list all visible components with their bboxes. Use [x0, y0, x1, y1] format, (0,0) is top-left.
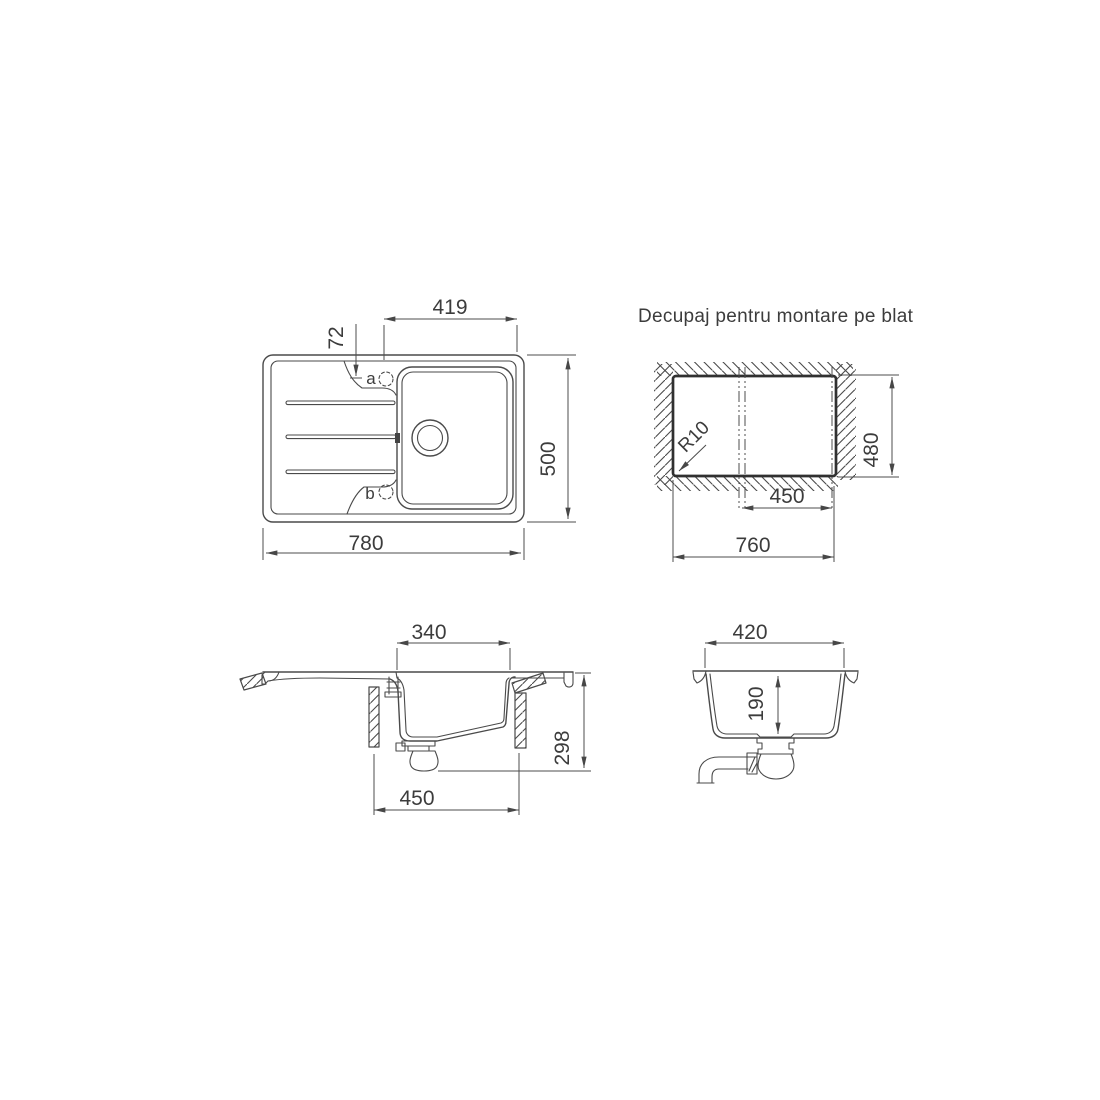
sink-dimension-drawing: a b 419 72 500 780 Decupaj pentru montar… [0, 0, 1100, 1100]
mounting-rail-right [515, 693, 526, 748]
dim-text-500: 500 [537, 441, 560, 476]
dim-text-760: 760 [735, 534, 770, 557]
hatch-band-right [836, 364, 856, 480]
dim-text-72: 72 [325, 326, 348, 349]
dim-text-450-side: 450 [399, 787, 434, 810]
page-background [0, 0, 1100, 1100]
dim-text-340: 340 [411, 621, 446, 644]
dim-text-450-cutout: 450 [769, 485, 804, 508]
tap-hole-a-label: a [366, 369, 376, 388]
dim-text-190: 190 [745, 686, 768, 721]
groove-drain-tick [395, 433, 400, 443]
cutout-title: Decupaj pentru montare pe blat [638, 306, 914, 327]
dim-text-480: 480 [860, 432, 883, 467]
dim-text-419: 419 [432, 296, 467, 319]
tap-hole-b-label: b [365, 484, 374, 503]
dim-text-780: 780 [348, 532, 383, 555]
mounting-rail-left [369, 687, 379, 747]
hatch-band-bottom [657, 476, 838, 491]
hatch-band-left [654, 364, 673, 485]
technical-drawing-page: a b 419 72 500 780 Decupaj pentru montar… [0, 0, 1100, 1100]
dim-text-420: 420 [732, 621, 767, 644]
dim-text-298: 298 [551, 730, 574, 765]
hatch-band-top [657, 362, 853, 376]
